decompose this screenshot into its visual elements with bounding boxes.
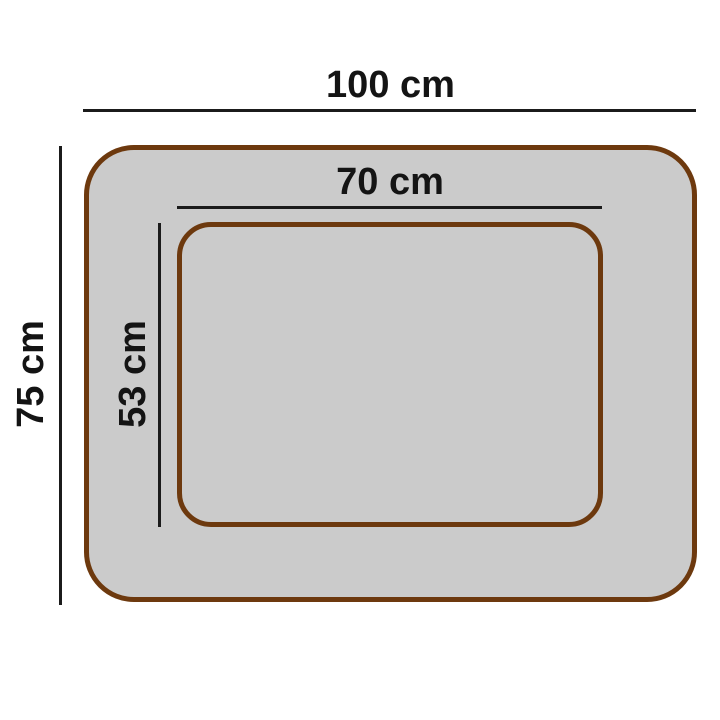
outer-width-label: 100 cm — [84, 66, 697, 104]
dimension-diagram: 100 cm 75 cm 70 cm 53 cm — [0, 0, 720, 720]
inner-width-label: 70 cm — [177, 163, 603, 201]
outer-width-dimension-line — [83, 109, 696, 112]
outer-height-label: 75 cm — [12, 320, 50, 428]
inner-height-dimension-line — [158, 223, 161, 527]
inner-height-label: 53 cm — [114, 320, 152, 428]
outer-height-dimension-line — [59, 146, 62, 605]
bed-inner-cushion-outline — [177, 222, 603, 527]
inner-width-dimension-line — [177, 206, 602, 209]
